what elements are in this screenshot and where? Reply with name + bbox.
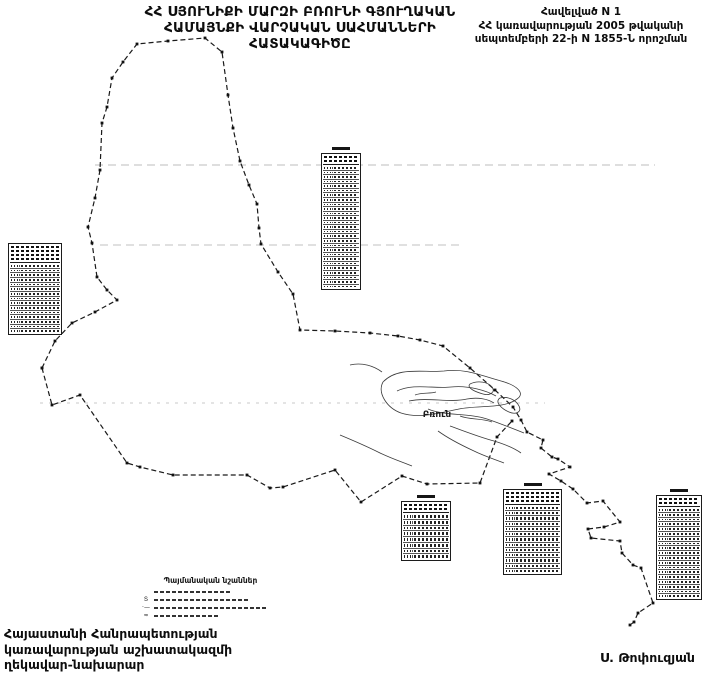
- map-canvas: [0, 0, 710, 680]
- boundary-point-marker: [126, 462, 129, 465]
- boundary-point-marker: [87, 226, 90, 229]
- boundary-point-marker: [360, 501, 363, 504]
- boundary-point-marker: [560, 480, 563, 483]
- legend-items: Տ·—≈: [138, 588, 283, 620]
- boundary-point-marker: [172, 474, 175, 477]
- settlement-label: Բռուն: [407, 410, 467, 420]
- table-title: [524, 483, 542, 486]
- appendix-line: Հավելված N 1: [455, 6, 707, 20]
- boundary-point-marker: [106, 289, 109, 292]
- boundary-point-marker: [632, 564, 635, 567]
- boundary-point-marker: [469, 367, 472, 370]
- legend-item: ≈: [138, 612, 283, 620]
- boundary-point-marker: [292, 293, 295, 296]
- coordinate-table: [321, 153, 361, 290]
- coordinate-table: [503, 489, 562, 575]
- boundary-point-marker: [548, 473, 551, 476]
- boundary-point-marker: [637, 612, 640, 615]
- legend-item: ·—: [138, 604, 283, 612]
- boundary-point-marker: [496, 436, 499, 439]
- boundary-point-marker: [96, 276, 99, 279]
- boundary-point-marker: [54, 340, 57, 343]
- boundary-point-marker: [602, 500, 605, 503]
- boundary-point-marker: [526, 431, 529, 434]
- boundary-point-marker: [511, 420, 514, 423]
- boundary-point-marker: [640, 567, 643, 570]
- legend-title: Պայմանական նշաններ: [138, 576, 283, 585]
- boundary-point-marker: [260, 243, 263, 246]
- boundary-point-marker: [71, 322, 74, 325]
- boundary-point-marker: [652, 602, 655, 605]
- issuing-office-line: կառավարության աշխատակազմի: [4, 642, 264, 658]
- issuing-office: Հայաստանի Հանրապետության կառավարության ա…: [4, 626, 264, 673]
- coordinate-table: [656, 495, 702, 600]
- boundary-point-marker: [587, 528, 590, 531]
- boundary-point-marker: [101, 122, 104, 125]
- table-title: [332, 147, 350, 150]
- boundary-point-marker: [91, 242, 94, 245]
- boundary-point-marker: [419, 339, 422, 342]
- boundary-point-marker: [426, 483, 429, 486]
- boundary-point-marker: [621, 552, 624, 555]
- boundary-point-marker: [542, 439, 545, 442]
- boundary-point-marker: [442, 345, 445, 348]
- boundary-point-marker: [619, 521, 622, 524]
- boundary-point-marker: [590, 537, 593, 540]
- boundary-point-marker: [94, 197, 97, 200]
- boundary-point-marker: [227, 94, 230, 97]
- boundary-point-marker: [299, 329, 302, 332]
- issuing-office-line: Հայաստանի Հանրապետության: [4, 626, 264, 642]
- boundary-point-marker: [269, 487, 272, 490]
- table-title: [417, 495, 435, 498]
- boundary-point-marker: [258, 227, 261, 230]
- boundary-point-marker: [512, 406, 515, 409]
- boundary-point-marker: [569, 466, 572, 469]
- boundary-point-marker: [248, 184, 251, 187]
- coordinate-table: [8, 243, 62, 335]
- boundary-point-marker: [401, 475, 404, 478]
- legend-item: Տ: [138, 596, 283, 604]
- boundary-point-marker: [106, 106, 109, 109]
- boundary-point-marker: [51, 404, 54, 407]
- map-title-line: ՀԱՏԱԿԱԳԻԾԸ: [130, 36, 470, 52]
- boundary-point-marker: [111, 77, 114, 80]
- boundary-point-marker: [557, 458, 560, 461]
- boundary-point-marker: [369, 332, 372, 335]
- boundary-point-marker: [232, 127, 235, 130]
- scanned-map-page: ՀՀ ՍՅՈՒՆԻՔԻ ՄԱՐԶԻ ԲՌՈՒՆԻ ԳՅՈՒՂԱԿԱՆ ՀԱՄԱՅ…: [0, 0, 710, 680]
- boundary-point-marker: [334, 330, 337, 333]
- boundary-point-marker: [282, 486, 285, 489]
- appendix-line: ՀՀ կառավարության 2005 թվականի: [455, 20, 707, 34]
- boundary-point-marker: [520, 419, 523, 422]
- appendix-reference: Հավելված N 1 ՀՀ կառավարության 2005 թվակա…: [455, 6, 707, 47]
- boundary-point-marker: [633, 621, 636, 624]
- boundary-point-marker: [479, 482, 482, 485]
- map-title: ՀՀ ՍՅՈՒՆԻՔԻ ՄԱՐԶԻ ԲՌՈՒՆԻ ԳՅՈՒՂԱԿԱՆ ՀԱՄԱՅ…: [130, 4, 470, 52]
- boundary-point-marker: [139, 466, 142, 469]
- boundary-point-marker: [99, 169, 102, 172]
- boundary-point-marker: [586, 502, 589, 505]
- boundary-point-marker: [494, 389, 497, 392]
- boundary-point-marker: [397, 335, 400, 338]
- boundary-point-marker: [41, 367, 44, 370]
- boundary-point-marker: [246, 474, 249, 477]
- boundary-point-marker: [239, 160, 242, 163]
- legend-item: [138, 588, 283, 596]
- map-title-line: ՀԱՄԱՅՆՔԻ ՎԱՐՉԱԿԱՆ ՍԱՀՄԱՆՆԵՐԻ: [130, 20, 470, 36]
- table-title: [670, 489, 688, 492]
- signatory-name: Ս. Թոփուզյան: [600, 650, 710, 665]
- boundary-point-marker: [551, 456, 554, 459]
- map-legend: Պայմանական նշաններ Տ·—≈: [138, 576, 283, 620]
- boundary-point-marker: [619, 540, 622, 543]
- boundary-point-marker: [277, 271, 280, 274]
- boundary-point-marker: [540, 447, 543, 450]
- boundary-point-marker: [629, 624, 632, 627]
- boundary-point-marker: [334, 469, 337, 472]
- boundary-point-marker: [256, 203, 259, 206]
- boundary-point-marker: [122, 61, 125, 64]
- boundary-point-marker: [79, 394, 82, 397]
- boundary-point-marker: [94, 311, 97, 314]
- coordinate-table: [401, 501, 451, 561]
- boundary-point-marker: [572, 488, 575, 491]
- community-boundary-south-line: [42, 368, 512, 502]
- map-title-line: ՀՀ ՍՅՈՒՆԻՔԻ ՄԱՐԶԻ ԲՌՈՒՆԻ ԳՅՈՒՂԱԿԱՆ: [130, 4, 470, 20]
- appendix-line: սեպտեմբերի 22-ի N 1855-Ն որոշման: [455, 33, 707, 47]
- boundary-point-marker: [116, 299, 119, 302]
- boundary-point-marker: [603, 526, 606, 529]
- issuing-office-line: ղեկավար-նախարար: [4, 657, 264, 673]
